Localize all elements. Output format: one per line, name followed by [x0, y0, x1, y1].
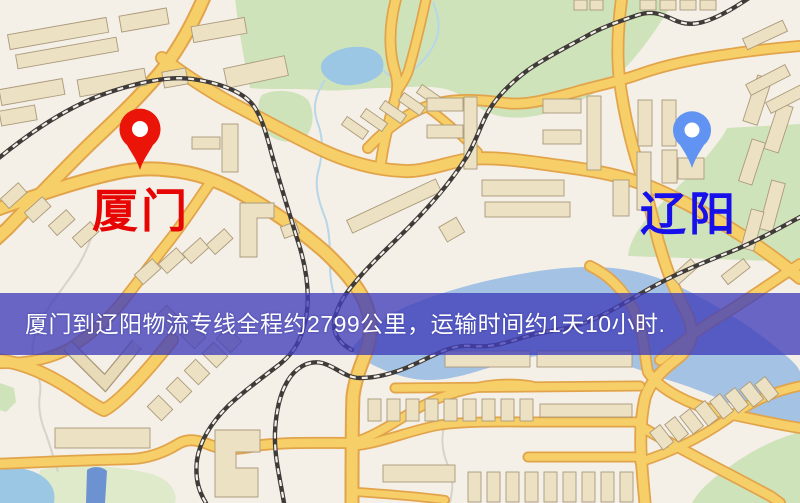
destination-pin-icon[interactable] [670, 108, 714, 173]
destination-city-label: 辽阳 [640, 178, 738, 244]
green-left-edge [0, 383, 16, 412]
map-screenshot: 厦门 辽阳 厦门到辽阳物流专线全程约2799公里，运输时间约1天10小时. [0, 0, 800, 503]
inlet [86, 467, 107, 503]
map-canvas[interactable] [0, 0, 800, 503]
meadow-bottom-left [39, 466, 175, 503]
c-shaped-building [215, 430, 260, 497]
route-info-banner: 厦门到辽阳物流专线全程约2799公里，运输时间约1天10小时. [0, 293, 800, 355]
route-info-text: 厦门到辽阳物流专线全程约2799公里，运输时间约1天10小时. [0, 293, 800, 355]
origin-city-label: 厦门 [92, 175, 190, 241]
origin-pin-icon[interactable] [116, 106, 164, 175]
